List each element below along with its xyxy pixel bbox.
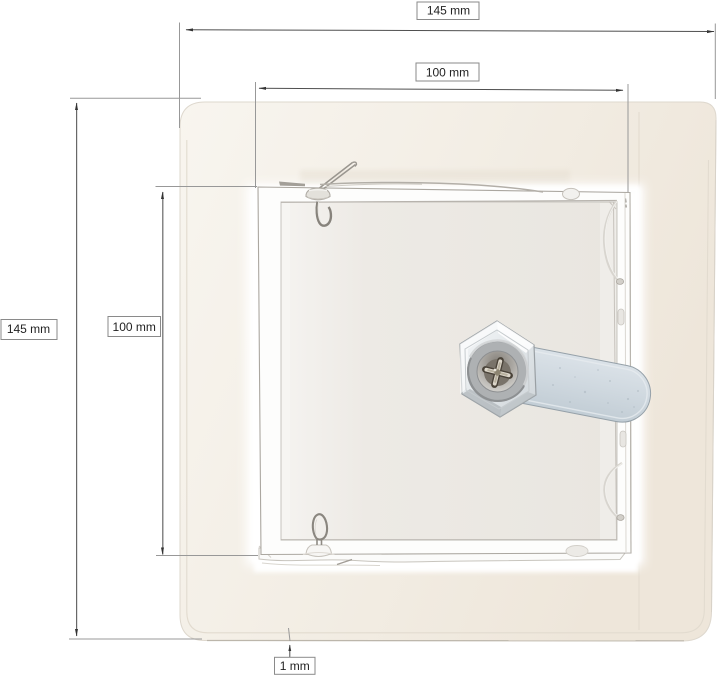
svg-text:100 mm: 100 mm (426, 65, 469, 79)
svg-text:1 mm: 1 mm (280, 659, 310, 673)
svg-text:145 mm: 145 mm (7, 322, 50, 336)
svg-text:145 mm: 145 mm (427, 3, 470, 17)
svg-text:100 mm: 100 mm (113, 320, 156, 334)
